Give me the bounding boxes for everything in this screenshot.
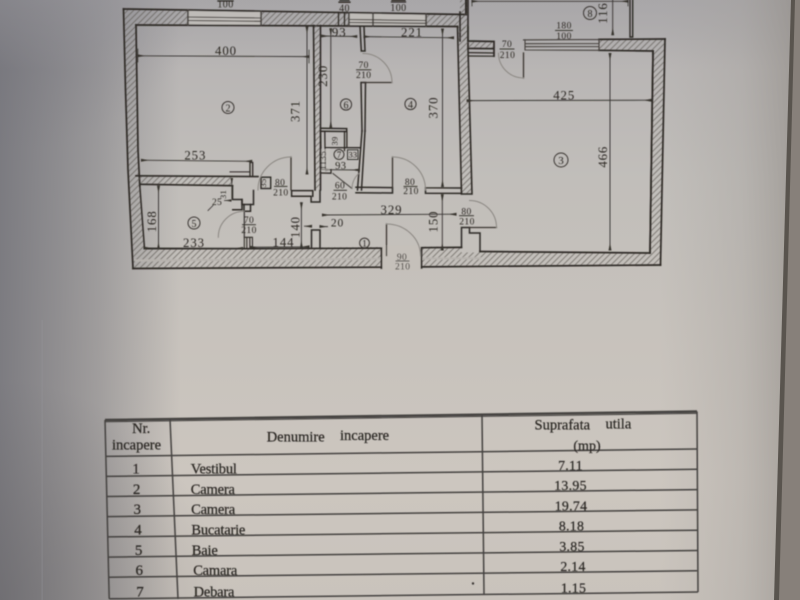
svg-text:1: 1 bbox=[362, 239, 367, 249]
svg-text:168: 168 bbox=[145, 210, 159, 232]
svg-text:7: 7 bbox=[337, 150, 342, 160]
svg-text:2.14: 2.14 bbox=[560, 559, 585, 574]
svg-text:utila: utila bbox=[606, 416, 632, 432]
svg-text:39: 39 bbox=[329, 137, 339, 146]
svg-text:370: 370 bbox=[427, 97, 441, 119]
svg-text:210: 210 bbox=[273, 189, 288, 199]
svg-text:5: 5 bbox=[135, 543, 143, 559]
svg-text:100: 100 bbox=[390, 3, 406, 14]
svg-text:93: 93 bbox=[332, 26, 347, 40]
svg-text:329: 329 bbox=[381, 203, 403, 217]
svg-text:6: 6 bbox=[344, 100, 349, 111]
svg-text:Bucatarie: Bucatarie bbox=[191, 523, 245, 539]
svg-text:233: 233 bbox=[183, 236, 205, 250]
svg-text:7: 7 bbox=[136, 584, 144, 600]
svg-text:1.15: 1.15 bbox=[561, 580, 586, 595]
svg-text:2: 2 bbox=[226, 103, 231, 114]
svg-text:400: 400 bbox=[215, 44, 237, 58]
svg-text:150: 150 bbox=[426, 211, 440, 233]
svg-text:230: 230 bbox=[316, 65, 330, 87]
svg-text:1135: 1135 bbox=[319, 151, 329, 170]
svg-text:4: 4 bbox=[134, 523, 142, 539]
svg-text:incapere: incapere bbox=[112, 438, 161, 454]
svg-text:Vestibul: Vestibul bbox=[191, 462, 237, 478]
svg-text:Nr.: Nr. bbox=[132, 421, 150, 437]
svg-text:40: 40 bbox=[339, 4, 350, 15]
svg-text:210: 210 bbox=[356, 71, 371, 81]
svg-text:20: 20 bbox=[331, 217, 344, 229]
svg-text:Suprafata: Suprafata bbox=[535, 418, 591, 434]
svg-text:1: 1 bbox=[132, 462, 140, 478]
svg-text:2: 2 bbox=[133, 482, 141, 498]
svg-text:Camera: Camera bbox=[191, 502, 236, 518]
svg-text:100: 100 bbox=[556, 32, 571, 42]
svg-text:19.74: 19.74 bbox=[555, 498, 588, 513]
svg-text:incapere: incapere bbox=[340, 428, 389, 444]
svg-text:Camara: Camara bbox=[193, 563, 238, 579]
svg-text:253: 253 bbox=[184, 149, 206, 163]
svg-text:210: 210 bbox=[241, 226, 256, 236]
svg-text:Denumire: Denumire bbox=[267, 429, 325, 445]
svg-text:116: 116 bbox=[596, 2, 610, 23]
svg-text:33: 33 bbox=[348, 150, 357, 160]
svg-text:(mp): (mp) bbox=[573, 439, 601, 454]
svg-text:8.18: 8.18 bbox=[559, 519, 584, 534]
svg-text:210: 210 bbox=[395, 263, 410, 273]
svg-text:3.85: 3.85 bbox=[559, 539, 584, 554]
svg-text:221: 221 bbox=[401, 25, 423, 39]
svg-text:7.11: 7.11 bbox=[558, 458, 583, 473]
svg-text:25: 25 bbox=[212, 198, 222, 208]
svg-text:210: 210 bbox=[403, 187, 418, 197]
svg-text:13.95: 13.95 bbox=[554, 478, 587, 493]
svg-text:Camera: Camera bbox=[191, 482, 236, 498]
svg-text:3: 3 bbox=[558, 155, 564, 167]
svg-text:425: 425 bbox=[553, 88, 575, 102]
svg-text:210: 210 bbox=[500, 51, 515, 61]
svg-text:3: 3 bbox=[134, 502, 142, 518]
svg-text:93: 93 bbox=[335, 161, 346, 172]
svg-text:144: 144 bbox=[273, 236, 295, 250]
svg-text:466: 466 bbox=[596, 146, 610, 168]
svg-text:6: 6 bbox=[136, 563, 144, 579]
svg-text:8: 8 bbox=[588, 9, 593, 20]
svg-text:Baie: Baie bbox=[192, 543, 218, 559]
svg-text:210: 210 bbox=[459, 217, 474, 227]
svg-text:210: 210 bbox=[332, 192, 347, 202]
svg-text:5: 5 bbox=[192, 219, 197, 230]
svg-text:4: 4 bbox=[408, 100, 413, 111]
svg-text:Debara: Debara bbox=[194, 584, 235, 600]
svg-text:371: 371 bbox=[289, 100, 303, 122]
